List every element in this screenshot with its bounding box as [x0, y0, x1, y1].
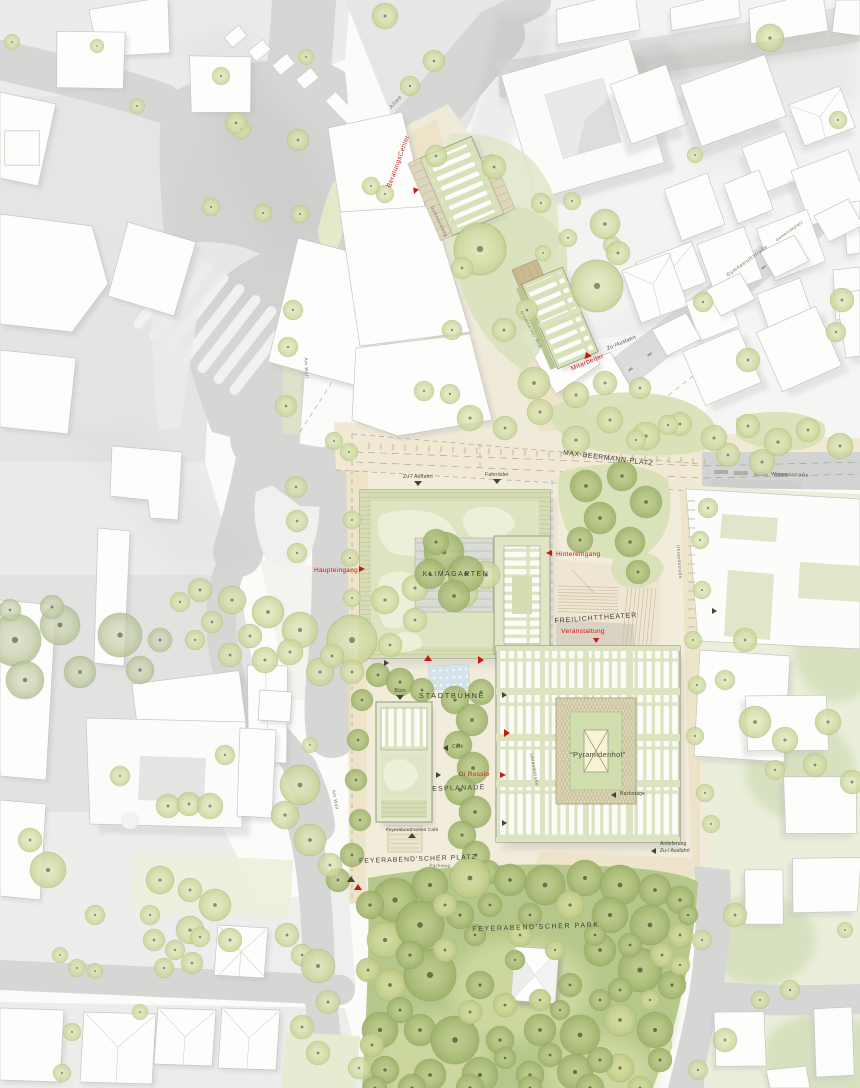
svg-text:Veranstaltung: Veranstaltung [561, 628, 605, 635]
svg-text:Parkweg: Parkweg [429, 863, 450, 868]
svg-text:Hintereingang: Hintereingang [556, 551, 600, 558]
svg-text:“Pyramidenhof”: “Pyramidenhof” [570, 750, 626, 759]
svg-text:Büro: Büro [394, 688, 405, 694]
svg-text:Haupteingang: Haupteingang [314, 567, 358, 574]
svg-text:Feyerabend’sches Café: Feyerabend’sches Café [386, 827, 439, 833]
svg-text:Anlieferung: Anlieferung [660, 841, 687, 847]
svg-text:STADTBÜHNE: STADTBÜHNE [419, 691, 485, 700]
svg-text:Zu-/ Ausfahrt: Zu-/ Ausfahrt [660, 848, 690, 854]
svg-text:Zu-/ Auffahrt: Zu-/ Auffahrt [403, 474, 433, 480]
svg-text:Backstage: Backstage [620, 791, 645, 797]
svg-text:Gi Rossio: Gi Rossio [459, 771, 490, 778]
svg-text:Café: Café [452, 744, 463, 750]
svg-text:KLIMAGARTEN: KLIMAGARTEN [423, 571, 490, 578]
svg-text:Fahrräder: Fahrräder [485, 472, 509, 478]
